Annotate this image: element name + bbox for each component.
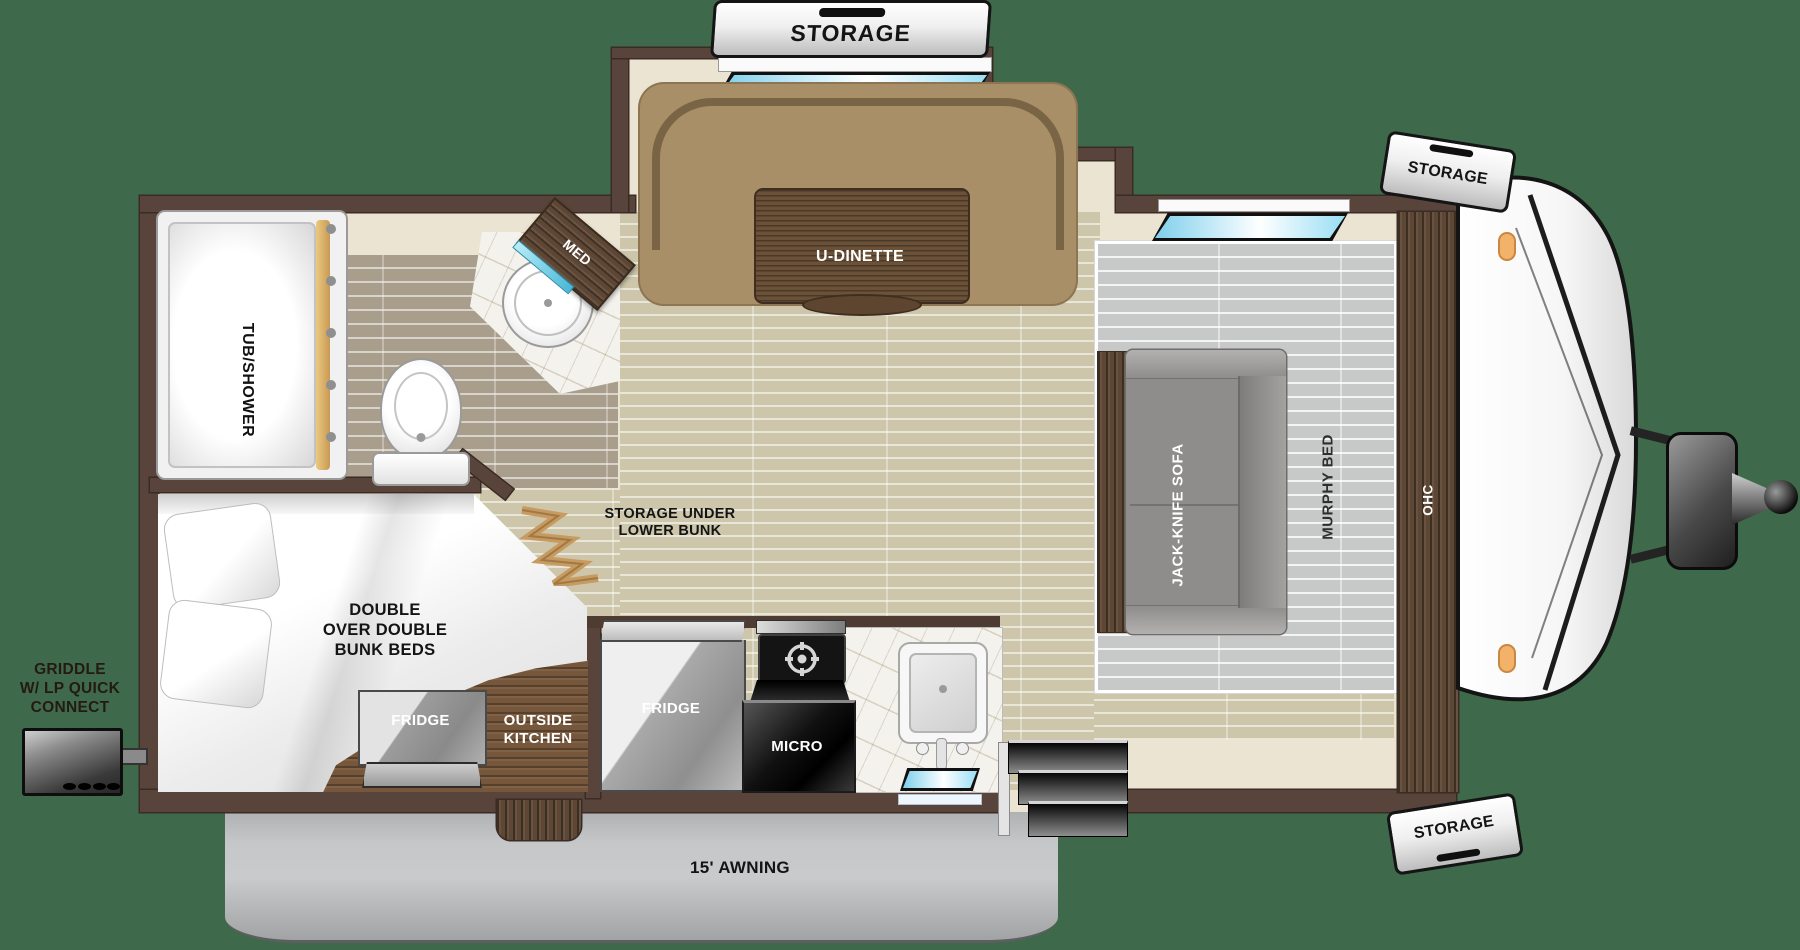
kitchen-window-sill [898,794,982,805]
stove-burner-icon [784,641,820,677]
murphy-window [1152,213,1348,241]
main-floor-front [1094,688,1394,740]
toilet-bowl [380,358,462,460]
bunk-bed-label: DOUBLE OVER DOUBLE BUNK BEDS [295,600,475,660]
outside-kitchen-tray [362,762,482,788]
micro-label: MICRO [742,738,852,756]
awning-area [225,800,1058,943]
kitchen-divider-wall [586,618,600,798]
griddle-knob [93,783,106,790]
kitchen-window [900,768,980,791]
murphy-bed-footboard [1098,352,1126,632]
curtain-ring [326,276,336,286]
faucet-knob [956,742,969,755]
storage-tag-front-bottom-label: STORAGE [1391,809,1516,847]
curtain-ring [326,224,336,234]
griddle-line1: GRIDDLE [2,660,138,679]
curtain-ring [326,380,336,390]
sofa-armrest-bottom [1126,605,1286,634]
murphy-window-sill [1158,199,1350,212]
griddle-knob [107,783,120,790]
tub-shower-label: TUB/SHOWER [238,323,256,437]
outside-fridge-label: FRIDGE [358,712,483,730]
entry-step [1018,770,1128,805]
griddle-knob [63,783,76,790]
oven-door [750,680,850,702]
jack-knife-sofa [1126,350,1286,634]
griddle [22,728,123,796]
awning-label: 15' AWNING [655,858,825,878]
slideout-window-sill [718,57,992,72]
kitchen-sink [898,642,988,744]
bunk-bed-label-line2: OVER DOUBLE [295,620,475,640]
slideout-wall-left [612,50,628,212]
floorplan-canvas: 15' AWNING JACK-KNIFE SOFA MURPHY BED [0,0,1800,950]
outside-kitchen-label: OUTSIDE KITCHEN [492,712,584,748]
propane-cover [1666,432,1738,570]
griddle-line3: CONNECT [2,698,138,717]
entry-step [1008,740,1128,774]
ohc-label: OHC [1421,484,1436,516]
outside-kitchen-line2: KITCHEN [492,730,584,748]
bunk-pillow [158,598,273,710]
sofa-armrest-top [1126,350,1286,379]
griddle-line2: W/ LP QUICK [2,679,138,698]
dinette-table [754,188,970,304]
cooktop [758,634,846,684]
storage-tag-front-top-label: STORAGE [1385,155,1510,193]
faucet-knob [916,742,929,755]
outside-kitchen-door [497,800,581,840]
hitch-ball [1764,480,1798,514]
curtain-ring [326,328,336,338]
dinette-table-edge [802,294,922,316]
griddle-knob [78,783,91,790]
storage-tag-slideout-label: STORAGE [714,20,988,47]
sofa-label: JACK-KNIFE SOFA [1170,443,1187,586]
storage-tag-slideout: STORAGE [710,0,992,58]
toilet-tank [372,452,470,486]
sofa-backrest [1238,376,1286,608]
outside-kitchen-line1: OUTSIDE [492,712,584,730]
marker-light-bottom [1499,645,1515,672]
kitchen-faucet [936,738,947,770]
u-dinette-label: U-DINETTE [754,248,966,267]
bunk-bed-label-line1: DOUBLE [295,600,475,620]
entry-step [1028,801,1128,837]
storage-under-line2: LOWER BUNK [590,523,750,540]
murphy-bed-label: MURPHY BED [1320,434,1337,540]
kitchen-fridge-label: FRIDGE [600,700,742,718]
marker-light-top [1499,233,1515,260]
range-vent [756,620,846,634]
griddle-label: GRIDDLE W/ LP QUICK CONNECT [2,660,138,717]
storage-under-line1: STORAGE UNDER [590,506,750,523]
bunk-bed-label-line3: BUNK BEDS [295,640,475,660]
bunk-pillow [162,501,282,611]
curtain-ring [326,432,336,442]
storage-under-label: STORAGE UNDER LOWER BUNK [590,506,750,540]
